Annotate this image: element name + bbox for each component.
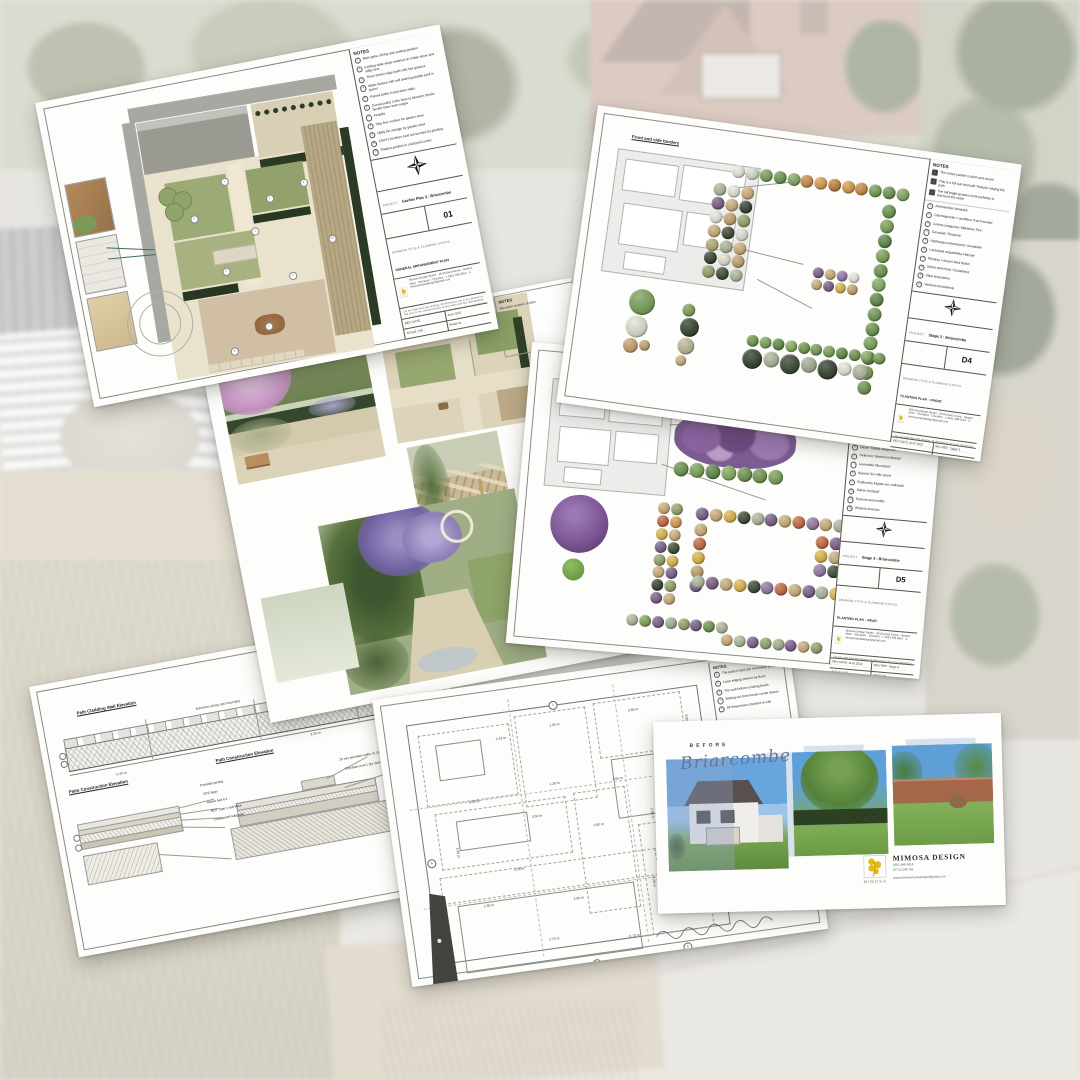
plant-circle — [733, 635, 746, 648]
list-item-text: Sesleria autumnalis — [856, 497, 885, 504]
plant-circle — [895, 188, 910, 203]
plant-circle — [764, 513, 778, 527]
plant-circle — [658, 502, 671, 515]
plant-circle — [792, 516, 806, 530]
plant-circle — [881, 204, 897, 220]
bullet-icon: 10 — [370, 140, 377, 147]
plant-circle — [729, 268, 744, 283]
bullet-icon: 10 — [916, 281, 923, 288]
plant-circle — [745, 167, 760, 182]
drawing-title-section: DRAWING TITLE & PLANNING STATUS PLANTING… — [833, 584, 920, 632]
plant-circle — [768, 470, 784, 486]
bullet-icon: 3 — [716, 689, 723, 696]
plant-circle — [772, 638, 785, 651]
bullet-icon: 1 — [927, 203, 934, 210]
plant-circle — [746, 636, 759, 649]
plant-circle — [702, 620, 715, 633]
plant-circle — [854, 182, 869, 197]
drawing-title-label: DRAWING TITLE & PLANNING STATUS — [839, 597, 898, 606]
plant-circle — [869, 292, 885, 308]
plant-circle — [701, 264, 716, 279]
garden-plan-drawing: 12345678910 — [98, 60, 394, 386]
mimosa-logo: MIMOSA — [863, 854, 888, 885]
plant-circle — [860, 350, 874, 364]
plant-circle — [800, 356, 818, 374]
bullet-icon: 7 — [919, 255, 926, 262]
plant-cluster-bed-bottom — [691, 575, 844, 602]
mimosa-logo: MIMOSA — [896, 406, 906, 430]
plant-circle — [677, 618, 690, 631]
leader-line — [179, 808, 219, 815]
plant-circle — [810, 642, 823, 655]
plant-circle — [863, 336, 879, 352]
project-label: PROJECT — [909, 330, 924, 336]
plant-circle — [778, 515, 792, 529]
patio-detail-drawing — [68, 777, 211, 910]
plant-circle — [740, 186, 755, 201]
plant-circle — [692, 551, 706, 565]
plant-circle — [727, 184, 742, 199]
plant-circle — [738, 200, 753, 215]
plant-circle — [873, 263, 889, 279]
bullet-icon: 11 — [847, 496, 854, 503]
plant-circle — [653, 553, 666, 566]
bullet-icon: 4 — [717, 698, 724, 705]
list-item-text: Rudbeckia fulgida var. sullivantii — [857, 480, 904, 488]
plant-circle — [847, 349, 861, 363]
plant-circle — [717, 253, 732, 268]
purple-tree — [548, 492, 611, 555]
leader-line — [160, 854, 232, 859]
collage-canvas: NOTES Indian sandstone 'Raj Green' riven… — [0, 0, 1080, 1080]
leader-line — [327, 756, 368, 779]
bullet-icon: 1 — [354, 57, 361, 64]
area-heading: Front and side borders — [632, 134, 680, 146]
plant-circle — [664, 617, 677, 630]
plant-circle — [689, 463, 705, 479]
plant-circle — [723, 510, 737, 524]
drawing-title: PLANTING PLAN – REAR — [837, 615, 877, 622]
brick-wall — [893, 777, 994, 804]
plant-circle — [805, 517, 819, 531]
plan-marker: 1 — [220, 177, 229, 186]
plant-circle — [736, 467, 752, 483]
plant-circle — [737, 511, 751, 525]
list-item-text: Pergola — [373, 112, 385, 118]
plant-circle — [811, 279, 823, 291]
plant-circle — [784, 640, 797, 653]
material-swatch-stone — [75, 234, 127, 295]
plant-circle — [778, 353, 801, 376]
checkbox-icon: ✓ — [929, 189, 936, 196]
reference-marker: 1 — [548, 700, 558, 710]
path-detail-drawing — [220, 742, 400, 866]
plant-circle — [773, 171, 788, 186]
plant-circle — [720, 465, 736, 481]
plant-circle — [816, 359, 839, 382]
plant-circle — [638, 339, 650, 351]
plant-circle — [786, 172, 801, 187]
plant-circle — [651, 578, 664, 591]
bullet-icon: 10 — [848, 488, 855, 495]
plant-circle — [656, 528, 669, 541]
notes-list: 1Main patio, dining and seating position… — [351, 41, 456, 160]
drawing-title-label: DRAWING TITLE & PLANNING STATUS — [903, 376, 962, 388]
render-soft-lawn — [261, 583, 360, 683]
plant-circle — [810, 343, 824, 357]
plant-circle — [732, 165, 747, 180]
plant-circle — [703, 251, 718, 266]
plant-circle — [682, 303, 697, 318]
bullet-icon: 5 — [922, 238, 929, 245]
plant-circle — [835, 347, 849, 361]
bullet-icon: 8 — [918, 264, 925, 271]
plant-circle — [827, 178, 842, 193]
plant-circle — [734, 227, 749, 242]
plant-circle — [836, 270, 848, 282]
plant-circle — [752, 468, 768, 484]
plant-circle — [741, 348, 764, 371]
shape — [83, 842, 163, 885]
bullet-icon: 7 — [365, 114, 372, 121]
plant-circle — [713, 182, 728, 197]
plant-circle — [694, 523, 708, 537]
bullet-icon: 8 — [849, 470, 856, 477]
before-label: BEFORE — [690, 742, 729, 749]
plant-circle — [709, 509, 723, 523]
detail-label: Porcelain paving — [199, 779, 223, 787]
plan-marker: 9 — [299, 178, 308, 187]
plant-circle — [664, 580, 677, 593]
bullet-icon: 4 — [923, 229, 930, 236]
plant-circle — [800, 174, 815, 189]
plant-circle — [733, 241, 748, 256]
shape — [793, 808, 887, 825]
plant-circle — [837, 361, 853, 377]
plant-circle — [705, 576, 719, 590]
plant-circle — [814, 550, 828, 564]
plant-circle — [719, 239, 734, 254]
bullet-icon: 6 — [363, 104, 370, 111]
plant-circle — [841, 180, 856, 195]
plant-circle — [709, 210, 724, 225]
plant-circle — [813, 563, 827, 577]
bullet-icon: 5 — [362, 95, 369, 102]
leader-line — [180, 817, 222, 820]
project-name: Garden Plan 3 : Briarcombe — [402, 190, 452, 203]
plant-circle — [815, 586, 829, 600]
plan-marker: 2 — [265, 194, 274, 203]
plant-circle — [705, 464, 721, 480]
plant-circle — [762, 351, 780, 369]
room — [563, 466, 602, 485]
detail-label: DPC layer — [203, 789, 218, 796]
shape — [437, 402, 448, 411]
green-shrub — [561, 558, 585, 582]
plant-circle — [801, 585, 815, 599]
bullet-icon: 6 — [921, 246, 928, 253]
material-swatch-gravel — [64, 177, 116, 238]
bullet-icon: 11 — [372, 149, 379, 156]
list-item-text: Stipa tenuissima — [925, 273, 950, 280]
bullet-icon: 7 — [850, 462, 857, 469]
plant-cluster-bed-mid — [810, 267, 863, 297]
plant-circle — [622, 337, 639, 354]
plant-circle — [705, 237, 720, 252]
plant-circle — [759, 169, 774, 184]
plant-circle — [784, 340, 798, 354]
plant-circle — [759, 637, 772, 650]
plant-circle — [715, 266, 730, 281]
bullet-icon: 8 — [367, 123, 374, 130]
plant-circle — [834, 282, 846, 294]
plant-circle — [750, 512, 764, 526]
contact-block: MIMOSA MIMOSA DESIGN 0161 496 0814 07712… — [863, 851, 996, 900]
plant-circle — [690, 619, 703, 632]
photo-lawn-wall — [892, 743, 995, 846]
north-arrow-icon — [405, 154, 428, 177]
room — [613, 431, 659, 465]
bullet-icon: 5 — [852, 444, 859, 451]
plant-circle — [655, 540, 668, 553]
bullet-icon: 6 — [851, 453, 858, 460]
plan-markers: 12345678910 — [98, 60, 394, 386]
plant-circle — [819, 518, 833, 532]
plan-marker: 3 — [190, 215, 199, 224]
shape — [759, 815, 784, 842]
checkbox-icon: ✓ — [930, 178, 937, 185]
list-item-text: Lavandula 'Munstead' — [859, 462, 891, 469]
plant-circle — [746, 334, 760, 348]
plant-circle — [677, 336, 696, 355]
drawing-title: PLANTING PLAN – FRONT — [900, 394, 942, 404]
plan-marker: 7 — [265, 322, 274, 331]
bullet-icon: 5 — [718, 706, 725, 713]
room — [618, 203, 683, 253]
plant-circle — [651, 616, 664, 629]
plant-circle — [822, 345, 836, 359]
plan-marker: 10 — [328, 234, 337, 243]
svg-text:MIMOSA: MIMOSA — [864, 879, 887, 885]
plant-circle — [665, 567, 678, 580]
plant-cluster-row — [720, 634, 837, 657]
email-address: www.mimosamariadesign@gmail.com — [893, 874, 966, 881]
studio-address: Mimosa Design Studio · 28 Orchard Grove … — [845, 629, 914, 646]
plant-circle — [731, 254, 746, 269]
plant-circle — [639, 615, 652, 628]
plant-circle — [759, 336, 773, 350]
plant-circle — [707, 223, 722, 238]
shape — [60, 760, 68, 768]
plant-circle — [847, 272, 859, 284]
plant-circle — [879, 219, 895, 235]
plant-circle — [822, 280, 834, 292]
plant-circle — [723, 212, 738, 227]
plant-circle — [788, 584, 802, 598]
shape — [59, 753, 67, 761]
plant-circle — [865, 321, 881, 337]
plant-circle — [824, 269, 836, 281]
plant-circle — [668, 529, 681, 542]
mimosa-logo: MIMOSA — [834, 628, 843, 651]
plant-circle — [624, 314, 649, 339]
plant-cluster-specimens — [675, 303, 706, 369]
plant-circle — [812, 267, 824, 279]
bullet-icon: 9 — [369, 132, 376, 139]
plan-marker: 8 — [230, 347, 239, 356]
plant-circle — [626, 614, 639, 627]
plant-circle — [693, 537, 707, 551]
shape — [75, 844, 83, 852]
bullet-icon: 9 — [917, 272, 924, 279]
project-name: Stage 3 : Briarcombe — [928, 333, 966, 342]
plant-circle — [667, 541, 680, 554]
bullet-icon: 2 — [925, 212, 932, 219]
bullet-icon: 3 — [924, 220, 931, 227]
sheet-before-photos: BEFORE Briarcombe — [653, 713, 1006, 914]
plant-circle — [772, 338, 786, 352]
bullet-icon: 9 — [849, 479, 856, 486]
plant-circle — [867, 307, 883, 323]
plant-circle — [692, 575, 706, 589]
plant-circle — [882, 186, 897, 201]
list-item-text: Salvia 'Amistad' — [856, 488, 879, 494]
plant-circle — [628, 288, 657, 317]
plan-marker: 6 — [289, 271, 298, 280]
design-studio-name: MIMOSA DESIGN — [893, 852, 966, 863]
bullet-icon: 12 — [846, 505, 853, 512]
list-item-text: Helenium 'Moerheim Beauty' — [859, 453, 901, 461]
plant-circle — [652, 566, 665, 579]
room — [622, 251, 666, 275]
plan-marker: 5 — [222, 267, 231, 276]
sheet-planting-plan-d4: Front and side borders NOTES ✓The colour… — [556, 105, 1022, 462]
north-arrow-icon — [943, 298, 962, 317]
project-label: PROJECT — [383, 201, 398, 208]
plant-cluster-bed-top — [695, 507, 848, 534]
plant-cluster-strip — [650, 502, 689, 606]
plant-circle — [813, 176, 828, 191]
plant-circle — [815, 536, 829, 550]
plant-circle — [797, 342, 811, 356]
project-label: PROJECT — [842, 554, 857, 559]
checkbox-icon: ✓ — [931, 169, 938, 176]
north-arrow-icon — [875, 520, 892, 537]
plant-circle — [877, 233, 893, 249]
plant-circle — [669, 516, 682, 529]
plant-circle — [733, 579, 747, 593]
plant-circle — [679, 317, 700, 338]
bullet-icon: 3 — [358, 76, 365, 83]
plant-circle — [797, 641, 810, 654]
plant-circle — [666, 554, 679, 567]
leader-line — [181, 827, 225, 828]
list-item-text: Nepeta 'Six Hills Giant' — [858, 471, 892, 478]
plant-circle — [650, 591, 663, 604]
plant-circle — [760, 581, 774, 595]
list-item-text: Amelanchier lamarckii — [935, 204, 968, 213]
plant-circle — [873, 352, 887, 366]
plant-circle — [774, 582, 788, 596]
plant-cluster-specimens — [622, 287, 661, 356]
plant-circle — [875, 248, 891, 264]
leader-line — [178, 798, 215, 808]
bullet-icon: 1 — [713, 672, 720, 679]
plant-circle — [725, 198, 740, 213]
phone-number: 07712 246 781 — [893, 865, 966, 872]
bullet-icon: 2 — [356, 66, 363, 73]
shape — [666, 758, 735, 872]
plant-circle — [663, 592, 676, 605]
plant-circle — [695, 507, 709, 521]
plant-circle — [746, 580, 760, 594]
plant-circle — [851, 363, 869, 381]
plan-marker: 4 — [251, 227, 260, 236]
photo-willow-garden — [792, 750, 889, 856]
plant-circle — [719, 578, 733, 592]
shape — [73, 834, 81, 842]
plant-circle — [675, 354, 687, 366]
project-name: Stage 3 : Briarcombe — [862, 555, 900, 562]
plant-circle — [671, 503, 684, 516]
plant-circle — [715, 622, 728, 635]
plant-circle — [673, 461, 689, 477]
list-item-text: Wisteria sinensis — [855, 506, 880, 512]
plant-circle — [871, 277, 887, 293]
plant-circle — [721, 225, 736, 240]
plant-circle — [721, 634, 734, 647]
plant-circle — [657, 515, 670, 528]
bullet-icon: 2 — [715, 680, 722, 687]
drawing-title-label: DRAWING TITLE & PLANNING STATUS — [392, 239, 450, 254]
bullet-icon: 4 — [360, 85, 367, 92]
room — [621, 158, 679, 197]
heading-wall-elevation: Path Cladding Wall Elevation — [76, 700, 136, 716]
plant-schedule: 1Amelanchier lamarckii2Calamagrostis × a… — [912, 199, 1009, 302]
room — [557, 426, 612, 466]
plant-circle — [846, 284, 858, 296]
plant-circle — [868, 184, 883, 199]
plant-circle — [736, 214, 751, 229]
reference-marker: A — [427, 859, 437, 869]
plant-cluster-row — [626, 613, 739, 635]
plant-circle — [711, 196, 726, 211]
leader-line — [757, 279, 812, 309]
